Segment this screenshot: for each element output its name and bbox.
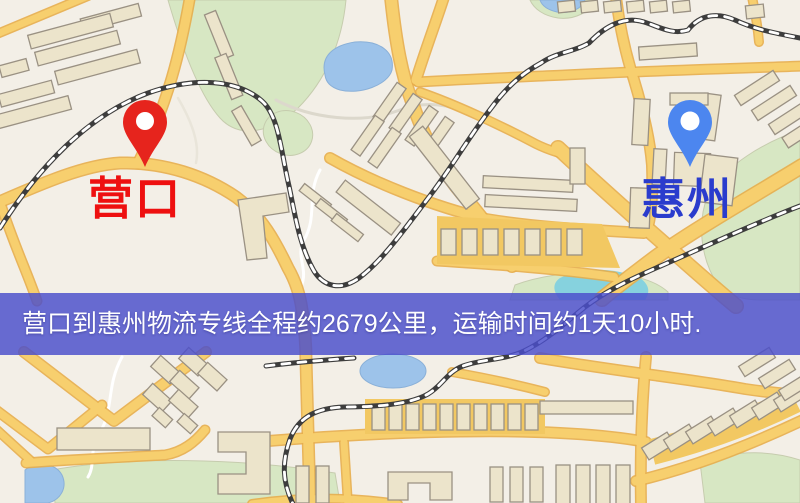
destination-city-label: 惠州 xyxy=(641,178,733,222)
origin-pin-body xyxy=(123,100,167,167)
origin-pin-icon[interactable] xyxy=(122,98,168,168)
origin-pin-hole xyxy=(136,112,154,130)
route-info-text: 营口到惠州物流专线全程约2679公里，运输时间约1天10小时. xyxy=(0,293,800,355)
destination-pin-icon[interactable] xyxy=(667,98,713,168)
destination-pin-hole xyxy=(681,112,700,131)
map-background xyxy=(0,0,800,503)
destination-pin-body xyxy=(668,100,712,167)
map-view[interactable]: 营口 惠州 营口到惠州物流专线全程约2679公里，运输时间约1天10小时. xyxy=(0,0,800,503)
route-info-banner: 营口到惠州物流专线全程约2679公里，运输时间约1天10小时. xyxy=(0,293,800,355)
origin-city-label: 营口 xyxy=(88,176,182,221)
